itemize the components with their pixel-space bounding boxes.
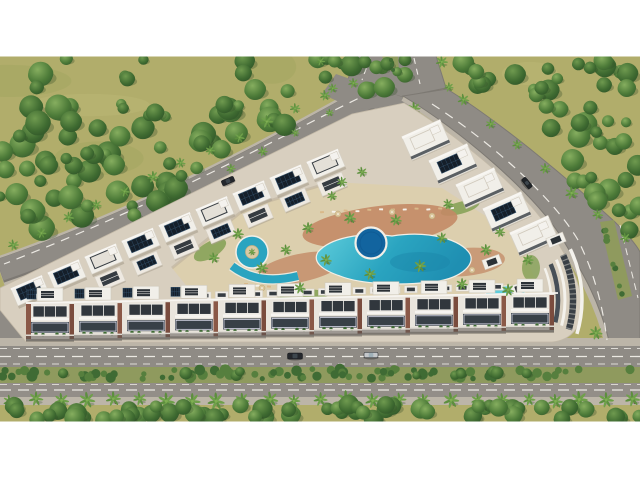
courtyard-facing-unit [353, 287, 366, 294]
tree-canopy [472, 400, 485, 413]
rooftop-structure [171, 285, 207, 298]
lower-window-band [271, 318, 309, 329]
rooftop-structure [469, 280, 495, 293]
tree-canopy [456, 369, 466, 379]
brick-pier [310, 300, 315, 335]
tree-canopy [522, 368, 532, 378]
street-facade-unit [218, 299, 266, 338]
tree-canopy [358, 55, 371, 68]
tree-canopy [80, 147, 94, 161]
palm-crown [485, 249, 487, 251]
lower-window-band [511, 313, 549, 324]
palm-crown [237, 233, 239, 235]
tree-canopy [120, 71, 135, 86]
base-strip [26, 335, 74, 337]
upper-window-band [417, 299, 451, 310]
lower-window-band [367, 316, 405, 327]
tree-canopy [419, 404, 435, 420]
palm-crown [441, 61, 443, 63]
sun-lounger [267, 285, 271, 287]
tree-canopy [612, 203, 626, 217]
ground-shadow [410, 332, 458, 335]
upper-window-band [33, 306, 67, 317]
palm-crown [165, 400, 168, 403]
palm-crown [597, 214, 599, 216]
shrub [141, 371, 146, 376]
brick-pier [166, 302, 171, 337]
courtyard-facing-unit [215, 291, 228, 298]
street-facade-unit [314, 298, 362, 337]
brick-pier [118, 303, 123, 338]
ground-shadow [266, 335, 314, 338]
ground-shadow [458, 331, 506, 334]
palm-crown [527, 259, 529, 261]
upper-window-band [369, 300, 403, 311]
tree-canopy [175, 399, 191, 415]
shrub [575, 366, 583, 374]
palm-crown [230, 168, 232, 170]
shrub [625, 365, 634, 374]
tree-canopy [176, 170, 188, 182]
sun-lounger [438, 207, 442, 209]
tree-canopy [154, 141, 166, 153]
tree-canopy [34, 175, 46, 187]
brick-pier [358, 299, 363, 334]
sun-lounger [355, 210, 359, 212]
shrub [84, 373, 93, 382]
shrub [29, 367, 39, 377]
tree-canopy [621, 117, 631, 127]
rooftop-structure [325, 283, 351, 296]
palm-crown [516, 144, 518, 146]
rooftop-louver [233, 287, 246, 294]
lower-window-band [79, 321, 117, 332]
tree-canopy [248, 410, 262, 424]
sun-lounger [320, 211, 324, 213]
sun-lounger [344, 209, 348, 211]
street-facade-unit [74, 302, 122, 341]
tree-canopy [235, 65, 252, 82]
palm-crown [294, 132, 296, 134]
tree-canopy [561, 149, 583, 171]
palm-crown [266, 120, 268, 122]
rooftop-louver [185, 288, 198, 295]
palm-crown [631, 398, 634, 401]
palm-crown [239, 136, 241, 138]
palm-crown [215, 400, 218, 403]
tree-canopy [412, 371, 420, 379]
ground-shadow [362, 333, 410, 336]
palm-crown [578, 398, 581, 401]
palm-crown [294, 107, 296, 109]
sun-lounger [379, 208, 383, 210]
shrub [430, 368, 438, 376]
letterbox-bottom [0, 422, 640, 480]
ground-shadow [218, 335, 266, 338]
rooftop-structure [373, 282, 399, 295]
brick-pier [454, 297, 459, 332]
shrub [380, 368, 387, 375]
upper-window-band [465, 298, 499, 309]
floor-slab [175, 315, 213, 318]
lower-window-band [31, 322, 69, 333]
street-facade-unit [266, 299, 314, 338]
lower-window-band [223, 318, 261, 329]
tree-canopy [535, 81, 549, 95]
palm-crown [461, 283, 463, 285]
shrub [563, 369, 569, 375]
base-strip [362, 328, 410, 330]
shrub [532, 368, 542, 378]
tree-canopy [190, 162, 203, 175]
shrub [260, 376, 265, 381]
floor-slab [319, 313, 357, 316]
palm-crown [86, 398, 89, 401]
tree-canopy [25, 110, 50, 135]
tree-canopy [374, 77, 395, 98]
sun-lounger [367, 209, 371, 211]
shrub [404, 373, 411, 380]
floor-slab [271, 314, 309, 317]
tree-canopy [615, 133, 632, 150]
upper-window-band [273, 302, 307, 313]
shrub [331, 370, 340, 379]
tree-canopy [591, 127, 602, 138]
shrub [603, 228, 609, 234]
shrub [44, 370, 50, 376]
tree-canopy [13, 130, 26, 143]
tree-canopy [491, 366, 504, 379]
tree-canopy [60, 111, 81, 132]
floor-slab [415, 311, 453, 314]
tree-canopy [597, 77, 612, 92]
tree-canopy [81, 200, 94, 213]
base-strip [506, 326, 554, 328]
shrub [251, 371, 258, 378]
palm-crown [371, 399, 374, 402]
parasol-top [391, 211, 393, 213]
ground-shadow [170, 336, 218, 339]
parasol-top [261, 287, 263, 289]
palm-crown [462, 99, 464, 101]
tree-canopy [572, 58, 585, 71]
tree-canopy [341, 54, 363, 76]
base-strip [266, 330, 314, 332]
base-strip [122, 333, 170, 335]
rooftop-louver [521, 282, 534, 289]
lower-window-band [127, 320, 165, 331]
shrub [388, 370, 394, 376]
shrub [110, 370, 117, 377]
tree-canopy [584, 62, 596, 74]
palm-crown [419, 265, 421, 267]
palm-crown [124, 190, 126, 192]
rooftop-louver [377, 285, 390, 292]
palm-crown [152, 176, 154, 178]
palm-crown [320, 60, 322, 62]
street-facade-unit [122, 301, 170, 340]
car [287, 353, 304, 361]
tree-canopy [61, 153, 72, 164]
palm-crown [595, 332, 597, 334]
palm-crown [251, 251, 252, 252]
aerial-render-frame [0, 0, 640, 480]
palm-crown [12, 244, 14, 246]
shrub [284, 372, 291, 379]
shrub [168, 375, 174, 381]
palm-crown [441, 237, 443, 239]
lower-window-band [319, 317, 357, 328]
tree-canopy [571, 114, 589, 132]
rooftop-louver [41, 291, 54, 298]
floor-slab [79, 317, 117, 320]
unit-window [355, 289, 363, 293]
base-strip [458, 326, 506, 328]
shrub [16, 369, 22, 375]
car [363, 352, 378, 359]
shrub [160, 375, 165, 380]
tree-canopy [602, 115, 614, 127]
shrub [270, 369, 277, 376]
brick-pier [70, 304, 75, 339]
lower-window-band [463, 314, 501, 325]
palm-crown [499, 231, 501, 233]
tree-canopy [39, 156, 58, 175]
tree-canopy [58, 368, 68, 378]
palm-crown [329, 112, 330, 113]
palm-crown [68, 216, 70, 218]
tree-canopy [618, 79, 636, 97]
palm-crown [213, 257, 215, 259]
upper-window-band [513, 297, 547, 308]
palm-crown [341, 181, 343, 183]
palm-crown [319, 398, 322, 401]
palm-crown [269, 398, 272, 401]
palm-crown [544, 167, 546, 169]
shrub [390, 63, 394, 67]
shrub [389, 58, 393, 62]
car-windshield [293, 354, 298, 358]
tree-canopy [273, 114, 295, 136]
tree-canopy [163, 157, 176, 170]
palm-crown [209, 149, 211, 151]
tree-canopy [534, 400, 549, 415]
tree-canopy [21, 209, 36, 224]
shrub [194, 365, 205, 376]
tree-canopy [552, 73, 563, 84]
tree-canopy [180, 367, 192, 379]
parasol-top [471, 269, 473, 271]
palm-crown [349, 217, 351, 219]
tree-canopy [319, 71, 332, 84]
shrub [346, 374, 353, 381]
tree-canopy [505, 64, 526, 85]
palm-crown [139, 397, 141, 399]
south-street-facade [26, 279, 554, 342]
palm-crown [299, 287, 301, 289]
shrub [619, 291, 625, 297]
palm-crown [40, 232, 42, 234]
tree-canopy [583, 101, 597, 115]
palm-crown [293, 400, 295, 402]
shrub [542, 372, 551, 381]
tree-canopy [19, 161, 35, 177]
rooftop-structure [421, 281, 447, 294]
shrub [1, 367, 8, 374]
tree-canopy [542, 119, 560, 137]
sun-lounger [415, 208, 419, 210]
tree-canopy [245, 79, 266, 100]
tree-canopy [235, 367, 245, 377]
tree-canopy [150, 400, 162, 412]
unit-window [218, 293, 226, 297]
tree-canopy [30, 80, 44, 94]
palm-crown [450, 399, 453, 402]
lower-window-band [415, 315, 453, 326]
brick-pier [26, 304, 31, 339]
upper-window-band [321, 301, 355, 312]
unit-window [407, 288, 415, 292]
street-facade-unit [410, 296, 458, 335]
rooftop-structure [27, 288, 63, 301]
tree-canopy [118, 103, 129, 114]
car-windshield [369, 353, 374, 357]
brick-pier [262, 300, 267, 335]
street-facade-unit [458, 295, 506, 334]
parasol-top [431, 215, 433, 217]
rooftop-louver [89, 290, 102, 297]
street-facade-unit [170, 300, 218, 339]
tree-canopy [618, 172, 634, 188]
lawn [522, 255, 540, 281]
palm-crown [35, 397, 38, 400]
ground-shadow [26, 339, 74, 342]
shrub [604, 234, 610, 240]
tree-canopy [146, 104, 164, 122]
shrub [171, 367, 177, 373]
palm-crown [395, 219, 397, 221]
shrub [8, 373, 16, 381]
tree-canopy [542, 63, 554, 75]
floor-slab [127, 316, 165, 319]
palm-crown [112, 397, 115, 400]
tree-canopy [58, 185, 82, 209]
tree-canopy [109, 126, 130, 147]
rooftop-structure [517, 279, 543, 292]
shrub [391, 68, 395, 72]
palm-crown [528, 398, 530, 400]
tree-canopy [356, 406, 370, 420]
palm-crown [554, 400, 557, 403]
tree-canopy [585, 172, 597, 184]
palm-crown [507, 289, 509, 291]
parasol-top [337, 213, 339, 215]
shrub [140, 376, 146, 382]
base-strip [170, 332, 218, 334]
tree-canopy [103, 154, 124, 175]
rooftop-structure [123, 286, 159, 299]
tree-canopy [587, 191, 607, 211]
tree-canopy [5, 183, 27, 205]
tree-canopy [377, 396, 395, 414]
palm-crown [324, 94, 326, 96]
street-facade-unit [506, 294, 554, 333]
palm-crown [490, 123, 492, 125]
upper-window-band [225, 302, 259, 313]
base-strip [74, 334, 122, 336]
upper-window-band [129, 304, 163, 315]
shrub [339, 371, 346, 378]
brick-pier [214, 301, 219, 336]
rooftop-louver [281, 287, 294, 294]
brick-pier [406, 298, 411, 333]
floor-slab [367, 312, 405, 315]
palm-crown [262, 150, 264, 152]
brick-pier [550, 295, 555, 330]
palm-crown [285, 249, 287, 251]
tree-canopy [212, 140, 231, 159]
palm-crown [361, 171, 363, 173]
sun-lounger [403, 209, 407, 211]
brick-pier [502, 296, 507, 331]
base-strip [218, 331, 266, 333]
unit-window [269, 292, 277, 296]
shrub [312, 372, 321, 381]
tree-canopy [9, 403, 24, 418]
floor-slab [511, 309, 549, 312]
shrub [551, 372, 558, 379]
palm-crown [570, 192, 572, 194]
palm-crown [447, 203, 449, 205]
palm-crown [307, 227, 309, 229]
rooftop-louver [329, 286, 342, 293]
palm-crown [332, 87, 334, 89]
palm-crown [261, 267, 263, 269]
tree-canopy [225, 122, 247, 144]
base-strip [410, 327, 458, 329]
upper-window-band [81, 305, 115, 316]
palm-crown [60, 399, 63, 402]
rooftop-structure [75, 287, 111, 300]
tree-canopy [281, 402, 296, 417]
tree-canopy [489, 399, 507, 417]
street-facade-unit [362, 297, 410, 336]
palm-crown [448, 86, 450, 88]
shrub [291, 365, 302, 376]
shrub [216, 370, 225, 379]
palm-crown [369, 273, 371, 275]
ground-shadow [314, 334, 362, 337]
lower-window-band [175, 319, 213, 330]
palm-crown [191, 400, 194, 403]
floor-slab [463, 310, 501, 313]
tree-canopy [216, 96, 233, 113]
floor-slab [223, 314, 261, 317]
shrub [356, 373, 362, 379]
palm-crown [180, 162, 182, 164]
shrub [300, 375, 306, 381]
letterbox-top [0, 0, 640, 57]
palm-crown [96, 204, 98, 206]
ground-shadow [506, 330, 554, 333]
palm-crown [331, 195, 333, 197]
palm-crown [352, 82, 354, 84]
ground-shadow [74, 338, 122, 341]
rooftop-louver [473, 283, 486, 290]
tree-canopy [281, 84, 295, 98]
tree-canopy [358, 81, 376, 99]
ground-shadow [122, 337, 170, 340]
